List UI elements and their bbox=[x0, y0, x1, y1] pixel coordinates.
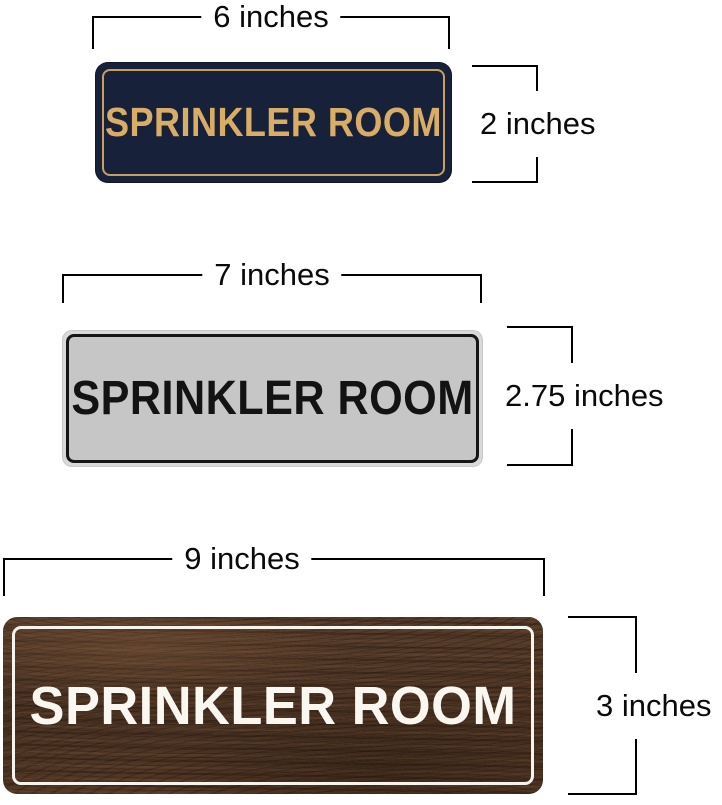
height-label-sign2: 2.75 inches bbox=[499, 363, 670, 429]
dimension-tick bbox=[507, 464, 573, 466]
height-label-sign1: 2 inches bbox=[474, 91, 601, 157]
height-bracket-sign2: 2.75 inches bbox=[507, 326, 573, 466]
dimension-tick bbox=[92, 16, 94, 49]
dimension-tick bbox=[568, 616, 637, 618]
width-label-sign1: 6 inches bbox=[201, 0, 340, 35]
height-label-sign3: 3 inches bbox=[590, 673, 717, 739]
width-label-sign2: 7 inches bbox=[202, 257, 341, 293]
dimension-tick bbox=[568, 793, 637, 795]
height-bracket-sign1: 2 inches bbox=[472, 65, 538, 183]
height-bracket-sign3: 3 inches bbox=[568, 616, 637, 795]
dimension-tick bbox=[472, 65, 538, 67]
dimension-tick bbox=[480, 274, 482, 303]
sign-wood-9x3: SPRINKLER ROOM bbox=[3, 617, 543, 794]
dimension-tick bbox=[3, 558, 5, 596]
dimension-tick bbox=[448, 16, 450, 49]
width-label-sign3: 9 inches bbox=[172, 541, 311, 577]
dimension-tick bbox=[543, 558, 545, 596]
sign-text: SPRINKLER ROOM bbox=[71, 371, 473, 426]
width-bracket-sign1: 6 inches bbox=[92, 16, 450, 49]
width-bracket-sign2: 7 inches bbox=[62, 274, 482, 303]
dimension-tick bbox=[472, 181, 538, 183]
sign-text: SPRINKLER ROOM bbox=[105, 99, 442, 146]
sign-text: SPRINKLER ROOM bbox=[30, 675, 517, 737]
dimension-tick bbox=[62, 274, 64, 303]
sign-navy-6x2: SPRINKLER ROOM bbox=[95, 62, 452, 183]
width-bracket-sign3: 9 inches bbox=[3, 558, 545, 596]
dimension-tick bbox=[507, 326, 573, 328]
sign-silver-7x275: SPRINKLER ROOM bbox=[62, 330, 483, 467]
product-size-diagram: 6 inches SPRINKLER ROOM 2 inches 7 inche… bbox=[0, 0, 722, 805]
